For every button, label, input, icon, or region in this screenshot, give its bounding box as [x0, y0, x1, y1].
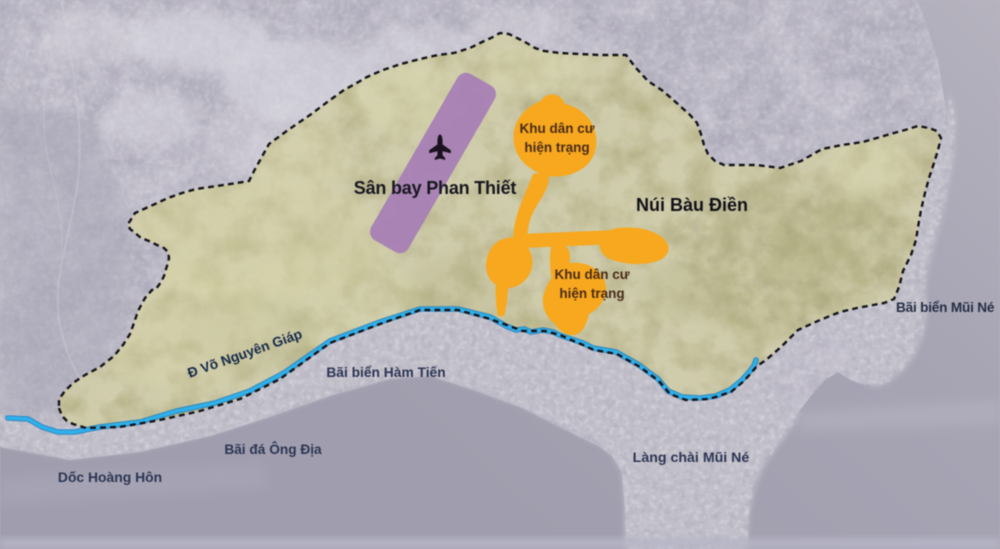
svg-text:hiện trạng: hiện trạng [559, 286, 624, 301]
svg-text:Bãi biển Mũi Né: Bãi biển Mũi Né [896, 300, 995, 315]
svg-text:Bãi biển Hàm Tiến: Bãi biển Hàm Tiến [326, 365, 445, 380]
svg-text:Dốc Hoàng Hôn: Dốc Hoàng Hôn [58, 469, 162, 485]
svg-text:Khu dân cư: Khu dân cư [519, 121, 594, 136]
svg-text:Núi Bàu Điền: Núi Bàu Điền [636, 195, 748, 215]
svg-text:Làng chài Mũi Né: Làng chài Mũi Né [633, 450, 750, 466]
svg-text:Bãi đá Ông Địa: Bãi đá Ông Địa [224, 442, 322, 457]
svg-text:hiện trạng: hiện trạng [524, 140, 589, 155]
svg-text:Sân bay Phan Thiết: Sân bay Phan Thiết [354, 178, 517, 198]
svg-text:Khu dân cư: Khu dân cư [554, 267, 629, 282]
